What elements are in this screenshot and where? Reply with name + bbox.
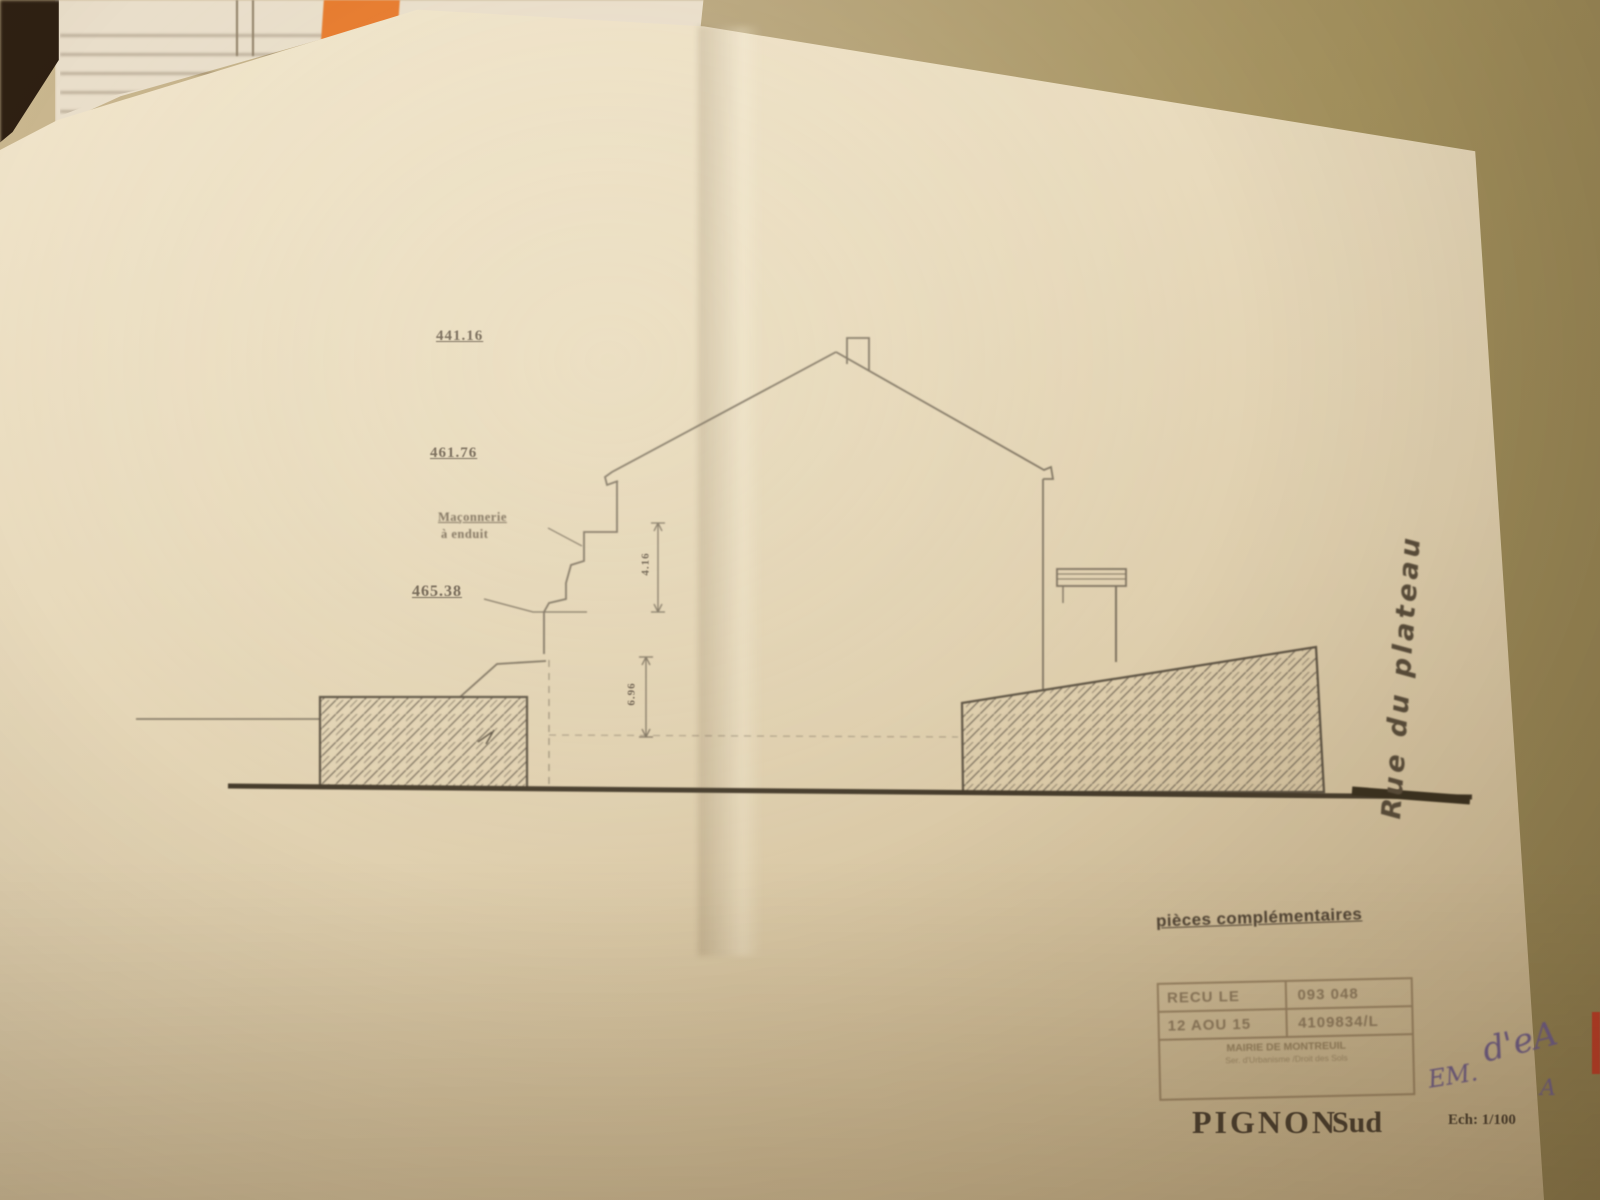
- stamp-date: 12 AOU 15: [1159, 1010, 1288, 1039]
- elevation-label-mid: 461.76: [430, 445, 477, 462]
- level-leader: [484, 599, 587, 612]
- dimension-line-lower: [639, 657, 653, 737]
- dimension-value-upper: 4.16: [640, 552, 652, 575]
- masonry-leader: [548, 528, 582, 546]
- left-wall-steps: [544, 481, 617, 654]
- masonry-note-line1: Maçonnerie: [438, 510, 507, 525]
- dimension-line-upper: [651, 523, 665, 612]
- elevation-label-street: 465.38: [412, 583, 462, 601]
- reception-stamp: RECU LE 093 048 12 AOU 15 4109834/L MAIR…: [1157, 977, 1416, 1101]
- terrain-slope: [460, 661, 546, 697]
- roof-right-slope: [836, 352, 1053, 479]
- left-retaining-wall: [320, 697, 527, 788]
- handwritten-letter: A: [1540, 1076, 1556, 1101]
- roof-left-slope: [605, 352, 836, 485]
- dimension-value-lower: 6.96: [626, 682, 638, 705]
- right-embankment: [962, 647, 1324, 792]
- drawing-title: PIGNON: [1192, 1104, 1338, 1141]
- scale-label: Ech: 1/100: [1448, 1112, 1516, 1129]
- stamp-recu-le: RECU LE: [1159, 982, 1288, 1011]
- drawing-title-orientation: Sud: [1332, 1106, 1382, 1140]
- masonry-note-line2: à enduit: [441, 527, 488, 542]
- chimney: [847, 338, 869, 371]
- stamp-ref: 4109834/L: [1288, 1007, 1412, 1036]
- balcony: [1057, 569, 1126, 662]
- elevation-label-top: 441.16: [436, 328, 483, 345]
- stamp-number: 093 048: [1287, 979, 1411, 1008]
- photo-of-elevation-drawing: 441.16 461.76 Maçonnerie à enduit 465.38…: [0, 0, 1600, 1200]
- dashed-horizontal: [549, 735, 958, 737]
